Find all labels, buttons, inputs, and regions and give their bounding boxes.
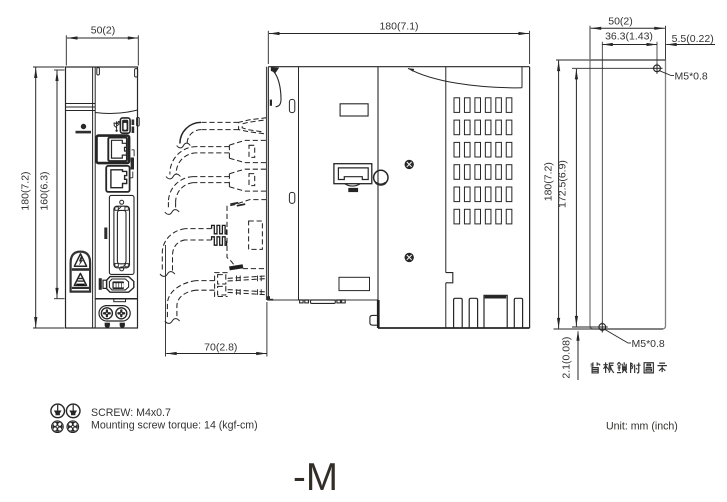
svg-text:Mounting screw torque: 14 (kgf: Mounting screw torque: 14 (kgf-cm) bbox=[91, 420, 258, 432]
svg-text:5.5(0.22): 5.5(0.22) bbox=[672, 33, 714, 45]
svg-text:172.5(6.9): 172.5(6.9) bbox=[557, 160, 569, 208]
svg-text:2.1(0.08): 2.1(0.08) bbox=[561, 337, 573, 379]
svg-text:70(2.8): 70(2.8) bbox=[204, 342, 237, 354]
svg-text:50(2): 50(2) bbox=[91, 25, 116, 37]
svg-text:M5*0.8: M5*0.8 bbox=[675, 71, 708, 83]
svg-text:50(2): 50(2) bbox=[608, 15, 633, 27]
svg-text:180(7.2): 180(7.2) bbox=[543, 162, 555, 201]
svg-text:-M: -M bbox=[293, 456, 338, 499]
svg-text:36.3(1.43): 36.3(1.43) bbox=[605, 31, 653, 43]
svg-text:160(6.3): 160(6.3) bbox=[39, 171, 51, 210]
svg-text:Unit: mm (inch): Unit: mm (inch) bbox=[606, 420, 678, 432]
svg-text:M5*0.8: M5*0.8 bbox=[632, 338, 665, 350]
svg-text:SCREW: M4x0.7: SCREW: M4x0.7 bbox=[91, 407, 171, 419]
svg-text:180(7.1): 180(7.1) bbox=[379, 20, 418, 32]
svg-text:180(7.2): 180(7.2) bbox=[20, 171, 32, 210]
